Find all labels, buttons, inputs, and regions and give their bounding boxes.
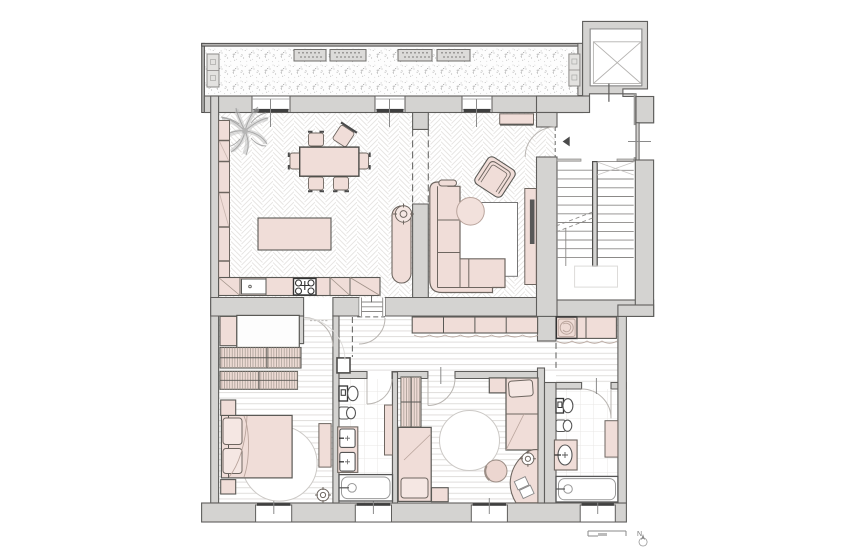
svg-text:N: N: [637, 531, 642, 538]
